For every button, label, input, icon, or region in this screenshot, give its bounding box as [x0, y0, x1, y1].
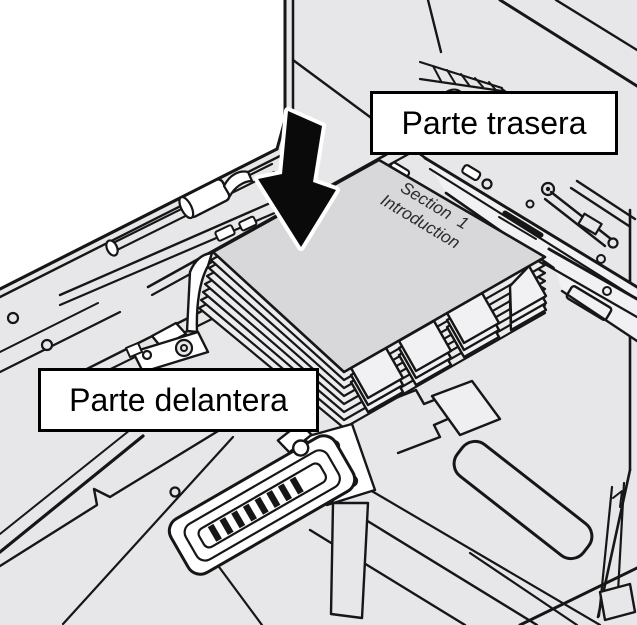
rail-hole — [483, 180, 492, 189]
label-parte-delantera-text: Parte delantera — [69, 384, 288, 416]
paper-guide-slider[interactable] — [154, 412, 360, 579]
rail-screw — [597, 255, 605, 263]
panel-edge — [500, 0, 637, 86]
tray-hole — [42, 340, 52, 350]
tray-edge-line — [0, 430, 130, 534]
tray-hole — [8, 313, 18, 323]
right-wall-foot — [600, 584, 635, 620]
tray-edge-line — [470, 553, 577, 625]
lever-arm — [551, 192, 611, 239]
lever-bracket — [578, 214, 601, 235]
support-post — [331, 503, 368, 618]
label-parte-delantera: Parte delantera — [38, 368, 319, 432]
machine-top-right — [428, 0, 637, 86]
tab-rest-block — [432, 381, 500, 435]
illustration-canvas: Section 1 Introduction — [0, 0, 637, 625]
latch-hole — [176, 340, 192, 356]
lever-pivot-pin — [546, 187, 550, 191]
tray-hole — [171, 488, 180, 497]
rail-clip — [461, 164, 481, 181]
recessed-slot — [448, 435, 599, 565]
rail-hole — [527, 201, 534, 208]
label-parte-trasera-text: Parte trasera — [402, 107, 587, 139]
right-wall-notch — [613, 491, 622, 507]
label-parte-trasera: Parte trasera — [370, 91, 618, 155]
lever-end — [609, 239, 618, 248]
tray-edge-line — [0, 436, 143, 552]
panel-edge — [428, 0, 441, 52]
